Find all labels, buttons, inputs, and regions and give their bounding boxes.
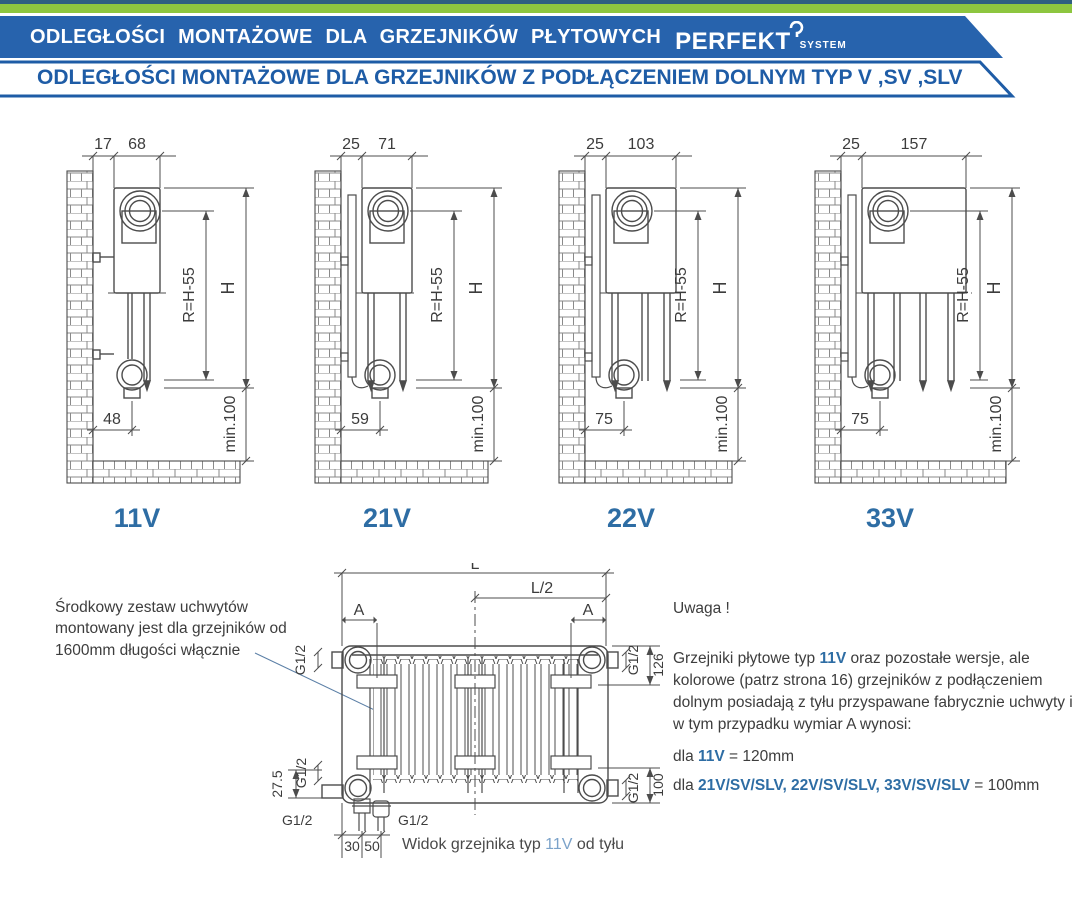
- dim-min-label: min.100: [222, 395, 239, 452]
- dim-length: L: [471, 563, 480, 573]
- dim-wall-gap: 25: [342, 136, 360, 153]
- dim-min-label: min.100: [714, 395, 731, 452]
- diagram-21v-cross-section: 25 71 59 R=H-55 H min.100: [280, 133, 530, 503]
- dim-h-label: H: [984, 282, 1004, 295]
- radiator-back-panel: [322, 646, 618, 803]
- g12-top-left: G1/2: [292, 645, 308, 676]
- subtitle-banner: ODLEGŁOŚCI MONTAŻOWE DLA GRZEJNIKÓW Z PO…: [0, 60, 1040, 98]
- dim-depth: 103: [628, 136, 655, 153]
- dim-r-label: R=H-55: [429, 267, 446, 323]
- dimension-a-11v: dla 11V = 120mm: [673, 746, 1072, 768]
- page-subtitle: ODLEGŁOŚCI MONTAŻOWE DLA GRZEJNIKÓW Z PO…: [37, 66, 963, 90]
- dim-min-label: min.100: [988, 395, 1005, 452]
- dim-wall-gap: 25: [842, 136, 860, 153]
- header-banner: ODLEGŁOŚCI MONTAŻOWE DLA GRZEJNIKÓW PŁYT…: [0, 16, 1010, 58]
- dim-27-5: 27.5: [269, 770, 285, 797]
- warning-body: Grzejniki płytowe typ 11V oraz pozostałe…: [673, 648, 1072, 736]
- brand-name: PERFEKT: [675, 30, 791, 54]
- dim-bottom: 75: [851, 411, 869, 428]
- dim-a-left: A: [354, 602, 365, 619]
- type-label-21v: 21V: [280, 503, 530, 534]
- dim-h-label: H: [218, 282, 238, 295]
- type-ref-11v: 11V: [819, 650, 846, 667]
- g12-bottom-left: G1/2: [293, 758, 309, 789]
- type-label-22v: 22V: [524, 503, 774, 534]
- dim-h-label: H: [466, 282, 486, 295]
- dim-wall-gap: 17: [94, 136, 112, 153]
- diagram-33v-cross-section: 25 157 75 R=H-55 H min.100: [780, 133, 1050, 503]
- dim-30: 30: [344, 838, 360, 854]
- diagram-22v-cross-section: 25 103 75 R=H-55 H min.100: [524, 133, 774, 503]
- dim-100: 100: [650, 773, 666, 797]
- dim-r-label: R=H-55: [955, 267, 972, 323]
- wall-bracket: [341, 195, 368, 388]
- wall-bracket: [841, 195, 868, 388]
- dim-r-label: R=H-55: [181, 267, 198, 323]
- dim-min-label: min.100: [470, 395, 487, 452]
- page-title: ODLEGŁOŚCI MONTAŻOWE DLA GRZEJNIKÓW PŁYT…: [30, 26, 661, 49]
- brand-logo: PERFEKT SYSTEM: [675, 21, 847, 54]
- g12-pipe-right: G1/2: [398, 812, 429, 828]
- dimension-a-others: dla 21V/SV/SLV, 22V/SV/SLV, 33V/SV/SLV =…: [673, 775, 1072, 797]
- warning-title: Uwaga !: [673, 598, 1072, 620]
- page: ODLEGŁOŚCI MONTAŻOWE DLA GRZEJNIKÓW PŁYT…: [0, 0, 1072, 898]
- dim-depth: 157: [901, 136, 928, 153]
- type-label-11v: 11V: [32, 503, 282, 534]
- g12-pipe-left: G1/2: [282, 812, 313, 828]
- dim-50: 50: [364, 838, 380, 854]
- dim-depth: 68: [128, 136, 146, 153]
- brand-sub: SYSTEM: [800, 40, 847, 51]
- diagram-11v-cross-section: 17 68 48 R=H-55 H min.100: [32, 133, 282, 503]
- dim-bottom: 59: [351, 411, 369, 428]
- dim-bottom: 75: [595, 411, 613, 428]
- dim-wall-gap: 25: [586, 136, 604, 153]
- dim-depth: 71: [378, 136, 396, 153]
- g12-top-right: G1/2: [625, 645, 641, 676]
- caption-type-11v: 11V: [545, 836, 572, 853]
- warning-note: Uwaga ! Grzejniki płytowe typ 11V oraz p…: [673, 598, 1072, 797]
- g12-bottom-right: G1/2: [625, 773, 641, 804]
- type-label-33v: 33V: [780, 503, 1050, 534]
- dim-bottom: 48: [103, 411, 121, 428]
- bottom-connections: [352, 799, 391, 831]
- dim-a-right: A: [583, 602, 594, 619]
- rear-view-caption: Widok grzejnika typ 11V od tyłu: [402, 836, 624, 854]
- dim-h-label: H: [710, 282, 730, 295]
- dim-half-length: L/2: [531, 580, 553, 597]
- dim-r-label: R=H-55: [673, 267, 690, 323]
- dim-126: 126: [650, 653, 666, 677]
- wall-bracket: [585, 195, 612, 388]
- green-strip: [0, 4, 1072, 13]
